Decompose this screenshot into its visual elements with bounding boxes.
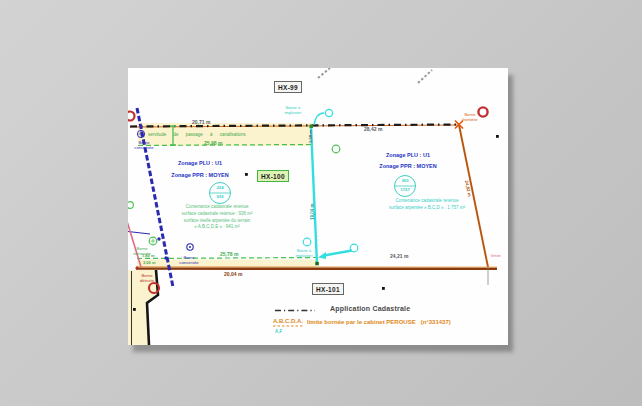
left-note-line: Contenance cadastrale retenue <box>162 204 272 211</box>
left-parcel-notes: Contenance cadastrale retenue surface ca… <box>162 204 272 231</box>
measure-band: 25,98 m <box>204 140 222 146</box>
corner-note: limite <box>486 254 506 259</box>
section-label-hx100: HX-100 <box>257 170 289 182</box>
measure-top-right: 28,42 m <box>364 126 382 132</box>
measure-bottom-brown: 20,04 m <box>224 271 242 277</box>
left-note-line: « A,B,C,D,E » : 941 m² <box>162 224 272 231</box>
borne-label-detruite: Borne détruite <box>136 274 158 284</box>
legend-limite-label: limite bornée par le cabinet PEROUSE (n°… <box>307 319 451 325</box>
measure-cyan-top: 1,50 m <box>308 130 313 143</box>
parcel-fills <box>128 123 316 345</box>
cadastral-plan-screenshot: HX-99 HX-100 HX-101 Zonage PLU : U1 Zona… <box>0 0 642 406</box>
measure-bottom-right: 24,21 m <box>390 253 408 259</box>
map-panel: HX-99 HX-100 HX-101 Zonage PLU : U1 Zona… <box>128 68 508 345</box>
borne-label-implanter-bottom: Borne à implanter <box>291 249 317 259</box>
right-note-line: Contenance cadastrale retenue <box>372 198 482 205</box>
left-parcel-number: 224 <box>210 185 230 190</box>
left-parcel-area: 936 <box>210 194 230 199</box>
legend-cadastrale-label: Application Cadastrale <box>330 305 410 312</box>
right-parcel-number: 365 <box>395 178 415 183</box>
right-parcel-zonage-ppr: Zonage PPR : MOYEN <box>353 163 463 169</box>
left-note-line: surface réelle arpentée du terrain <box>162 218 272 225</box>
pink-boundary-line <box>128 218 141 270</box>
borne-label-conservee-top: Borne conservée <box>132 141 156 151</box>
legend-partial-line: A,F <box>275 329 282 334</box>
cyan-leader-arrow-icons <box>314 109 352 259</box>
right-note-line: surface arpentée « B,C,D » : 1 757 m² <box>372 205 482 212</box>
faint-survey-marks <box>318 68 432 83</box>
legend-points-label: A.B.C.D.A. <box>273 318 303 324</box>
borne-label-retrouvee: Borne retrouvée <box>130 247 154 257</box>
right-parcel-zonage-plu: Zonage PLU : U1 <box>353 152 463 158</box>
left-parcel-zonage-plu: Zonage PLU : U1 <box>145 160 255 166</box>
right-parcel-area: 1757 <box>395 187 415 192</box>
borne-label-conservee-bottom: Borne conservée <box>176 256 202 266</box>
measure-cyan-mid: 19,04 m <box>310 203 315 220</box>
servitude-band-note: servitude de passage à canalisations <box>148 132 290 137</box>
measure-bottom-green: 25,78 m <box>220 251 238 257</box>
left-parcel-zonage-ppr: Zonage PPR : MOYEN <box>145 172 255 178</box>
left-note-line: surface cadastrale retenue : 936 m² <box>162 211 272 218</box>
borne-label-implanter-top: Borne à implanter <box>280 106 306 116</box>
section-label-hx99: HX-99 <box>274 81 302 93</box>
right-parcel-notes: Contenance cadastrale retenue surface ar… <box>372 198 482 212</box>
borne-label-frontiere: Borne frontière <box>458 113 482 123</box>
measure-top-left: 20,71 m <box>192 119 210 125</box>
measure-small-2: 3,00 m <box>143 260 155 265</box>
section-label-hx101: HX-101 <box>312 283 344 295</box>
cyan-division-line <box>310 125 319 266</box>
